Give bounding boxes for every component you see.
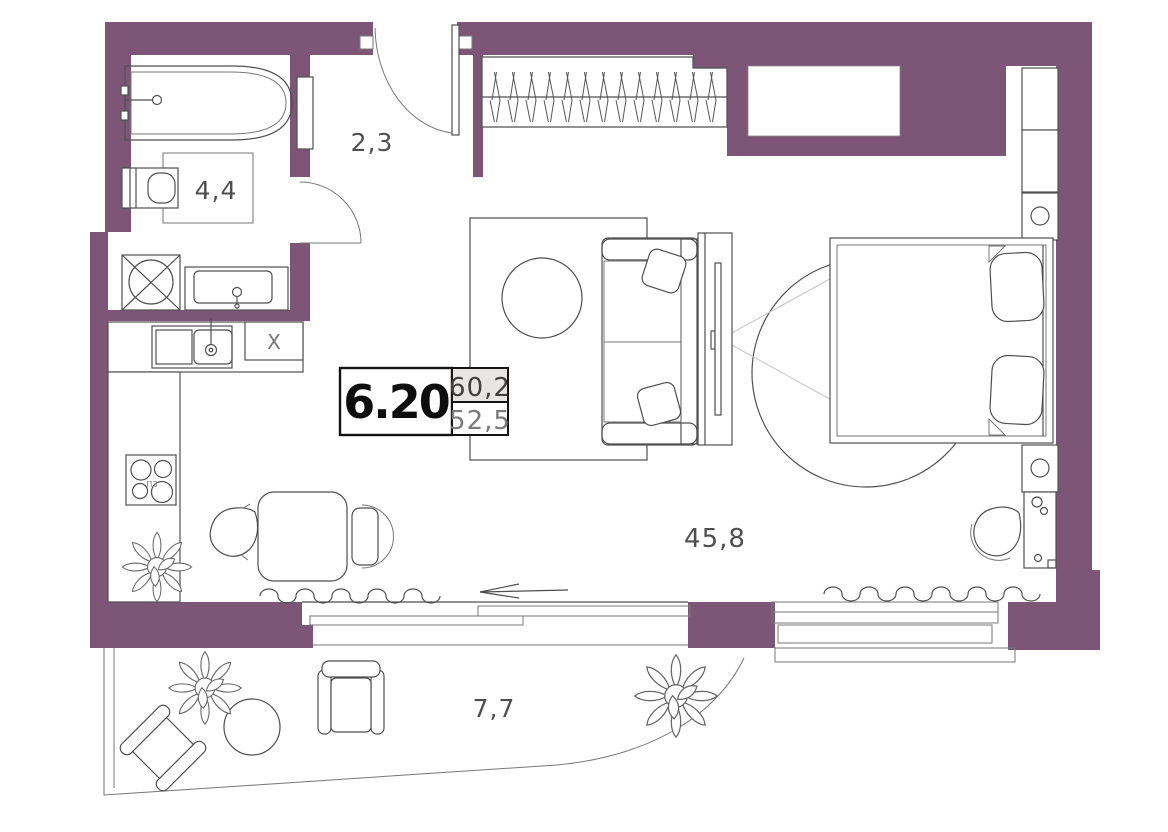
door-jamb-left: [360, 36, 373, 49]
wall-niche-right: [900, 66, 1006, 156]
wall-bottom-left-step: [302, 625, 313, 648]
living-area-value: 52,5: [449, 406, 511, 436]
entry-door-leaf: [452, 25, 459, 135]
wall-bathroom-right-lower: [290, 243, 310, 321]
stove-type-label: ПЗ: [146, 480, 157, 489]
balcony-table: [224, 699, 280, 755]
living-area-label: 45,8: [684, 524, 746, 554]
shower-tray: [122, 255, 180, 310]
bathroom-area-label: 4,4: [195, 176, 238, 205]
sofa: [602, 238, 698, 445]
dining-table: [258, 492, 347, 581]
wall-niche: [748, 66, 900, 136]
bathtub-tap-2: [121, 111, 128, 120]
hallway-area-label: 2,3: [351, 128, 394, 157]
pillow-2: [989, 355, 1044, 426]
window-right-inner: [778, 625, 992, 643]
vanity-sink: [185, 267, 288, 310]
cabinet-x-label: X: [267, 330, 281, 354]
balcony-plant-2: [635, 655, 718, 738]
wall-cabinets: [1022, 68, 1058, 192]
washing-machine: [122, 168, 178, 208]
balcony: 7,7: [104, 648, 744, 795]
floor-plan: 7,7 2,3: [0, 0, 1168, 832]
wall-bathroom-bottom: [90, 310, 303, 321]
wall-niche-bottom: [748, 136, 900, 156]
dining-chair-left: [210, 504, 257, 560]
dining-chair-right: [352, 505, 394, 568]
balcony-armchair: [318, 661, 384, 734]
wall-top-left: [105, 22, 373, 55]
kitchen-sink: [152, 318, 232, 368]
window-ledge: [775, 648, 1015, 662]
stove: ПЗ: [126, 455, 176, 505]
windows: [302, 584, 1015, 662]
curtain-left: [260, 589, 440, 603]
nightstand-top: [1022, 193, 1058, 240]
bathtub-tap-1: [121, 86, 128, 95]
balcony-area-label: 7,7: [473, 694, 516, 723]
wall-bottom-right: [1008, 602, 1100, 650]
wall-step: [693, 55, 727, 68]
wardrobe: [482, 57, 727, 127]
tv-screen: [715, 263, 721, 415]
sliding-panel-right: [478, 606, 690, 616]
dining-area: [210, 492, 393, 581]
tv-unit: [698, 233, 732, 445]
slide-direction-arrow: [480, 584, 568, 598]
bathroom-door-swing: [300, 182, 361, 243]
desk-chair: [971, 507, 1021, 560]
unit-number: 6.20: [343, 375, 449, 429]
floor-plan-page: 7,7 2,3: [0, 0, 1168, 832]
wall-top-right: [693, 22, 1092, 66]
wall-top-mid: [457, 22, 693, 55]
curtain-right: [824, 587, 1040, 601]
wall-bottom-left: [90, 602, 302, 648]
nightstand-bottom: [1022, 445, 1058, 492]
balcony-plant-1: [169, 652, 242, 725]
unit-label-box: 6.20 60,2 52,5: [340, 368, 511, 436]
door-jamb-right: [459, 36, 472, 49]
hall-cabinet: [297, 77, 313, 149]
wall-left-lower: [90, 232, 108, 648]
bathtub-drain: [153, 96, 162, 105]
bed: [830, 238, 1053, 443]
pillow-1: [989, 252, 1044, 323]
wall-niche-left: [727, 55, 748, 156]
coffee-table: [502, 258, 582, 338]
total-area-value: 60,2: [449, 373, 511, 403]
entry-door-swing: [375, 28, 452, 133]
sink-tap: [206, 345, 217, 356]
sliding-panel-left: [310, 616, 523, 625]
kitchen-plant: [122, 532, 191, 601]
tv-view-line-1: [721, 270, 846, 339]
balcony-armchair-rotated: [118, 703, 209, 794]
wall-right: [1056, 66, 1092, 602]
tv-view-line-2: [721, 339, 846, 408]
desk: [1024, 492, 1056, 568]
bathroom: 4,4: [121, 66, 361, 310]
wall-bottom-pier: [688, 602, 775, 648]
